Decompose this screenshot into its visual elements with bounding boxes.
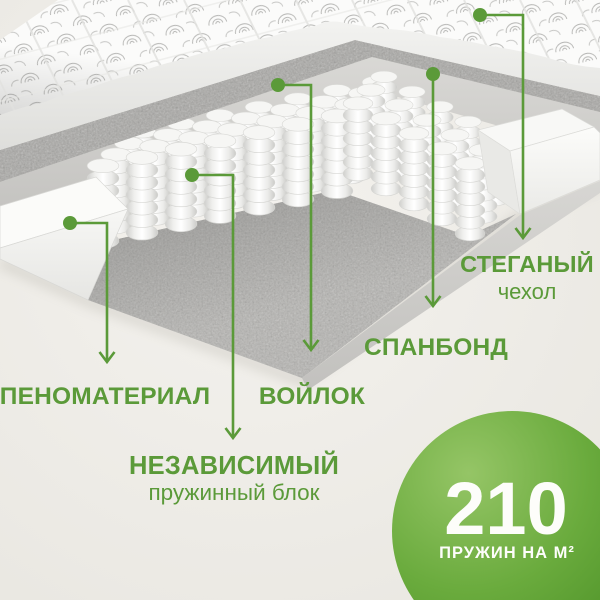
callout-dot-cover [473,8,487,22]
callout-label-felt: ВОЙЛОК [259,382,365,410]
callout-sublabel-spring-block: пружинный блок [148,480,319,505]
mattress-infographic: 210 ПРУЖИН НА М² СТЕГАНЫЙ чехол СПАНБОНД… [0,0,600,600]
badge-value: 210 [444,467,567,550]
callout-sublabel-cover: чехол [498,279,557,304]
mattress-illustration: 210 ПРУЖИН НА М² СТЕГАНЫЙ чехол СПАНБОНД… [0,0,600,600]
badge-caption: ПРУЖИН НА М² [439,544,575,562]
callout-label-foam: ПЕНОМАТЕРИАЛ [0,383,210,410]
callout-dot-foam [63,216,77,230]
callout-label-spring-block: НЕЗАВИСИМЫЙ [129,450,339,480]
callout-label-cover: СТЕГАНЫЙ [460,250,594,277]
callout-dot-spunbond [426,67,440,81]
callout-dot-felt [271,78,285,92]
callout-label-spunbond: СПАНБОНД [364,334,508,361]
callout-dot-spring-block [185,168,199,182]
